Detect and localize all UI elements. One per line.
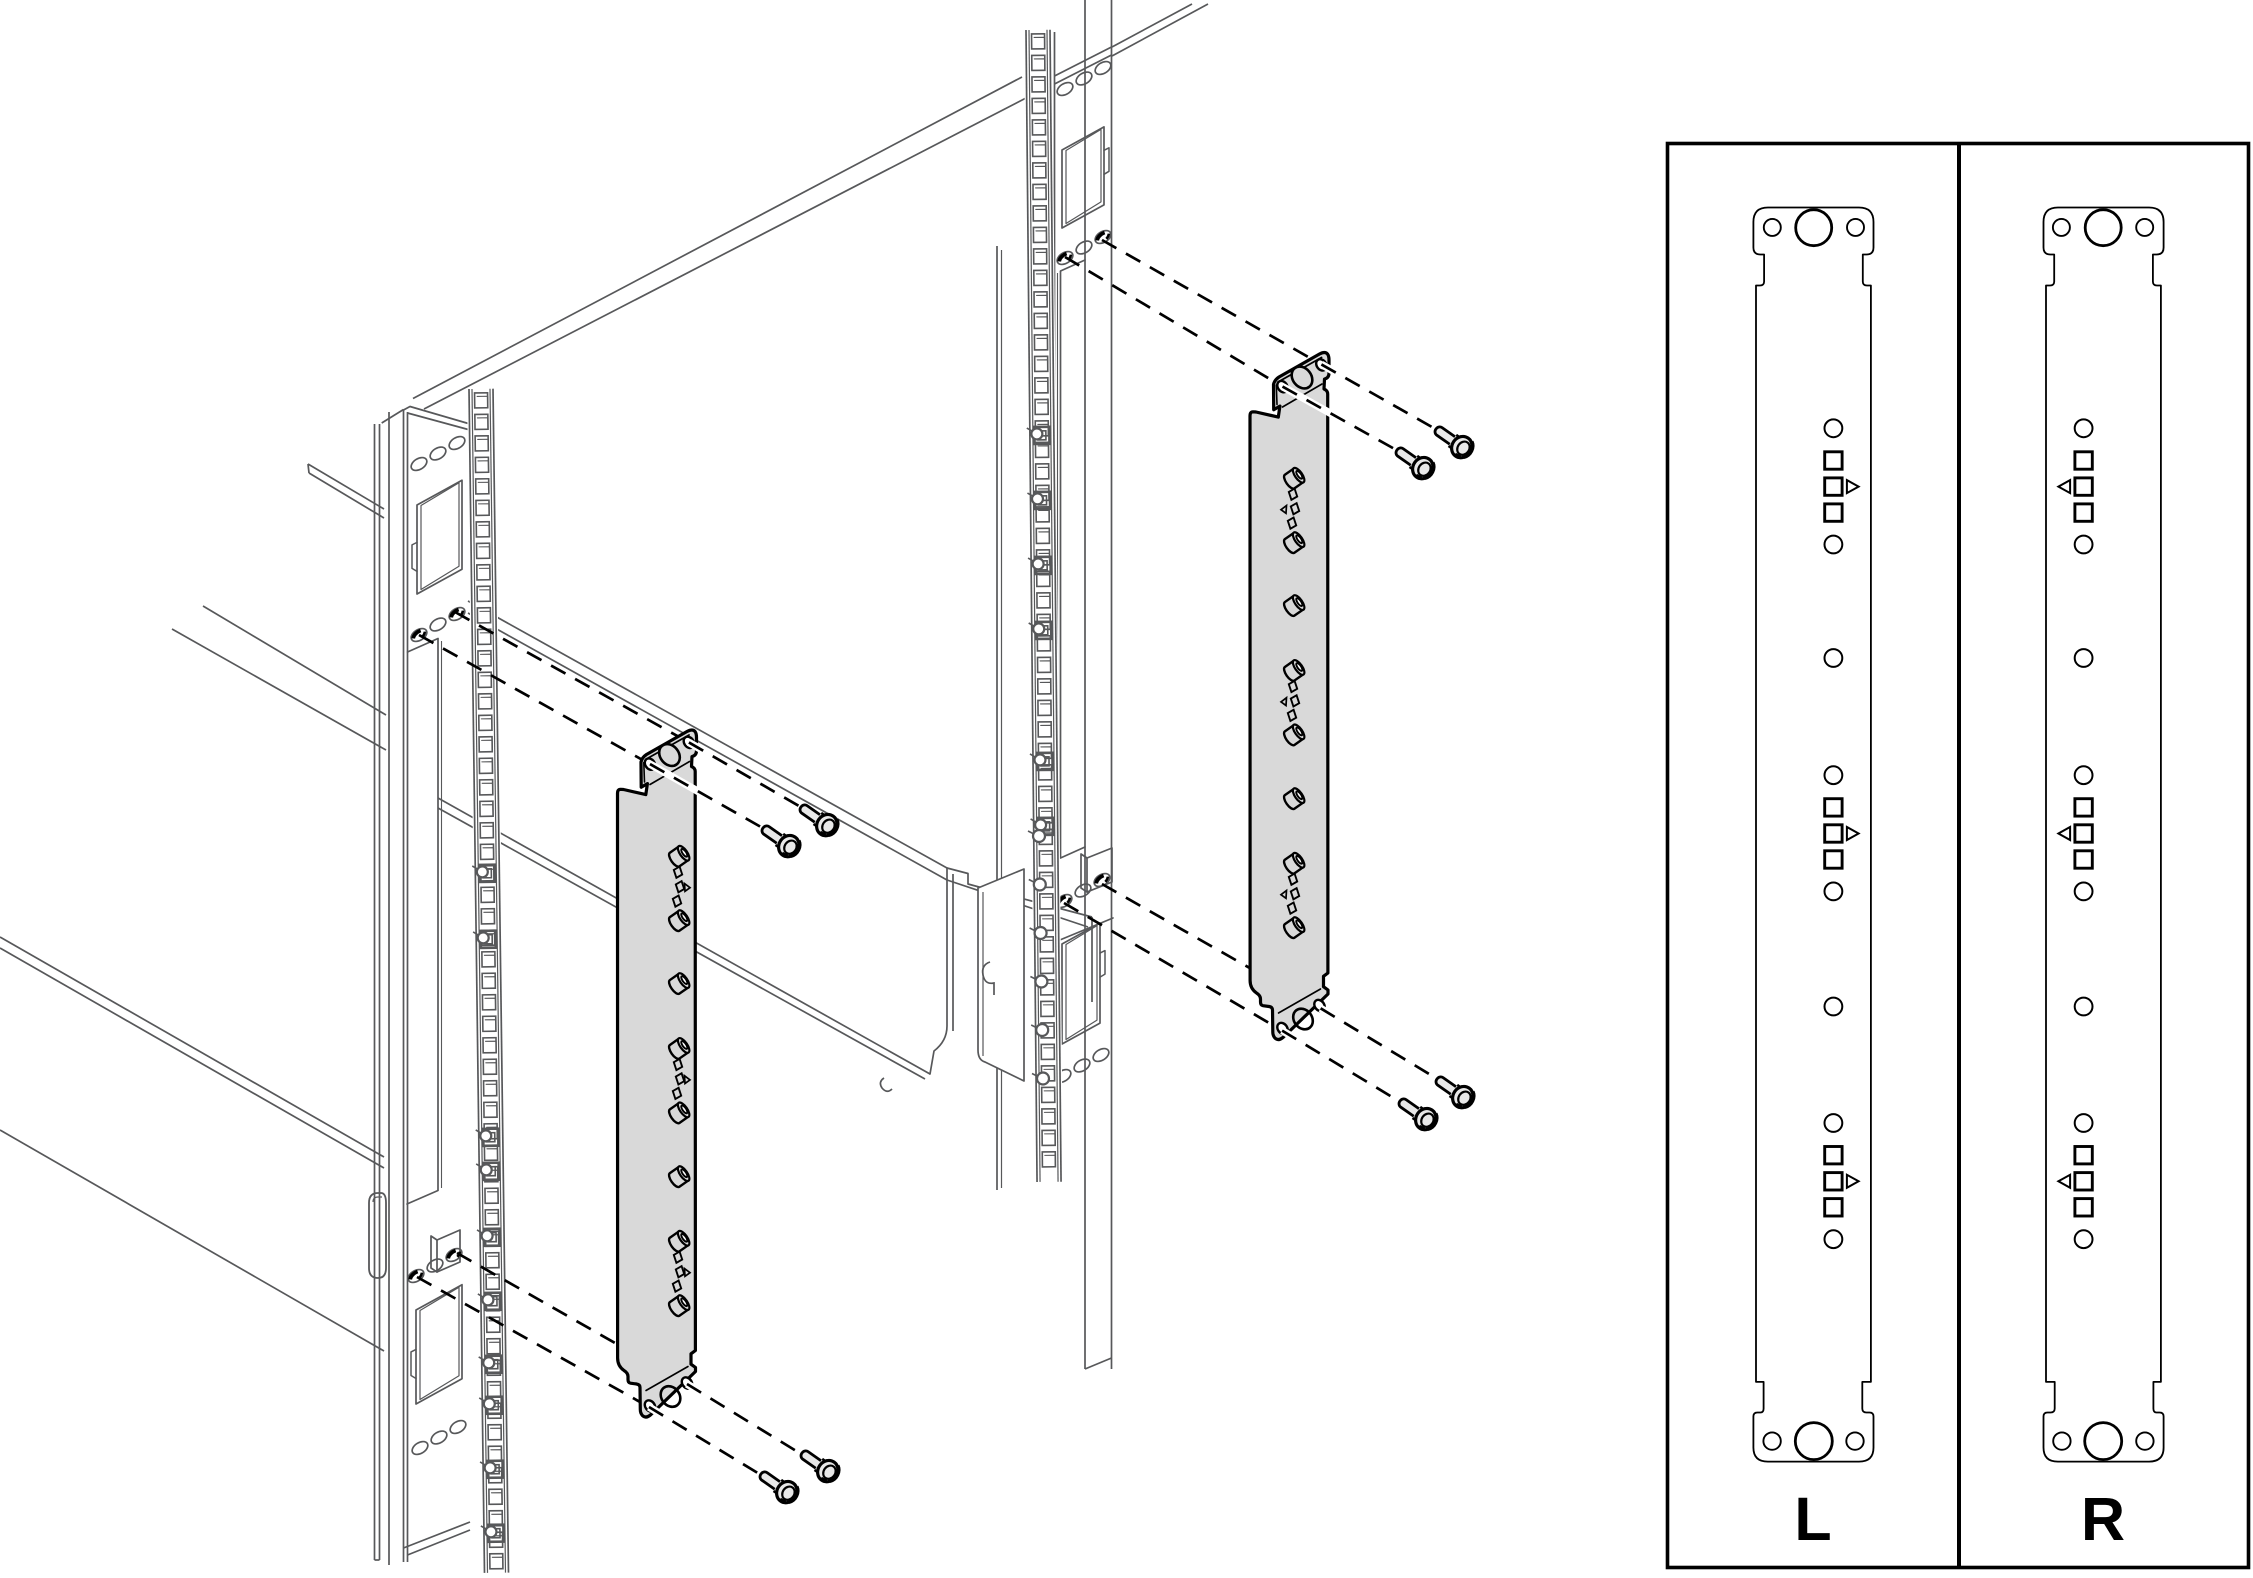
svg-text:L: L xyxy=(1794,1485,1831,1553)
svg-text:R: R xyxy=(2081,1485,2125,1553)
